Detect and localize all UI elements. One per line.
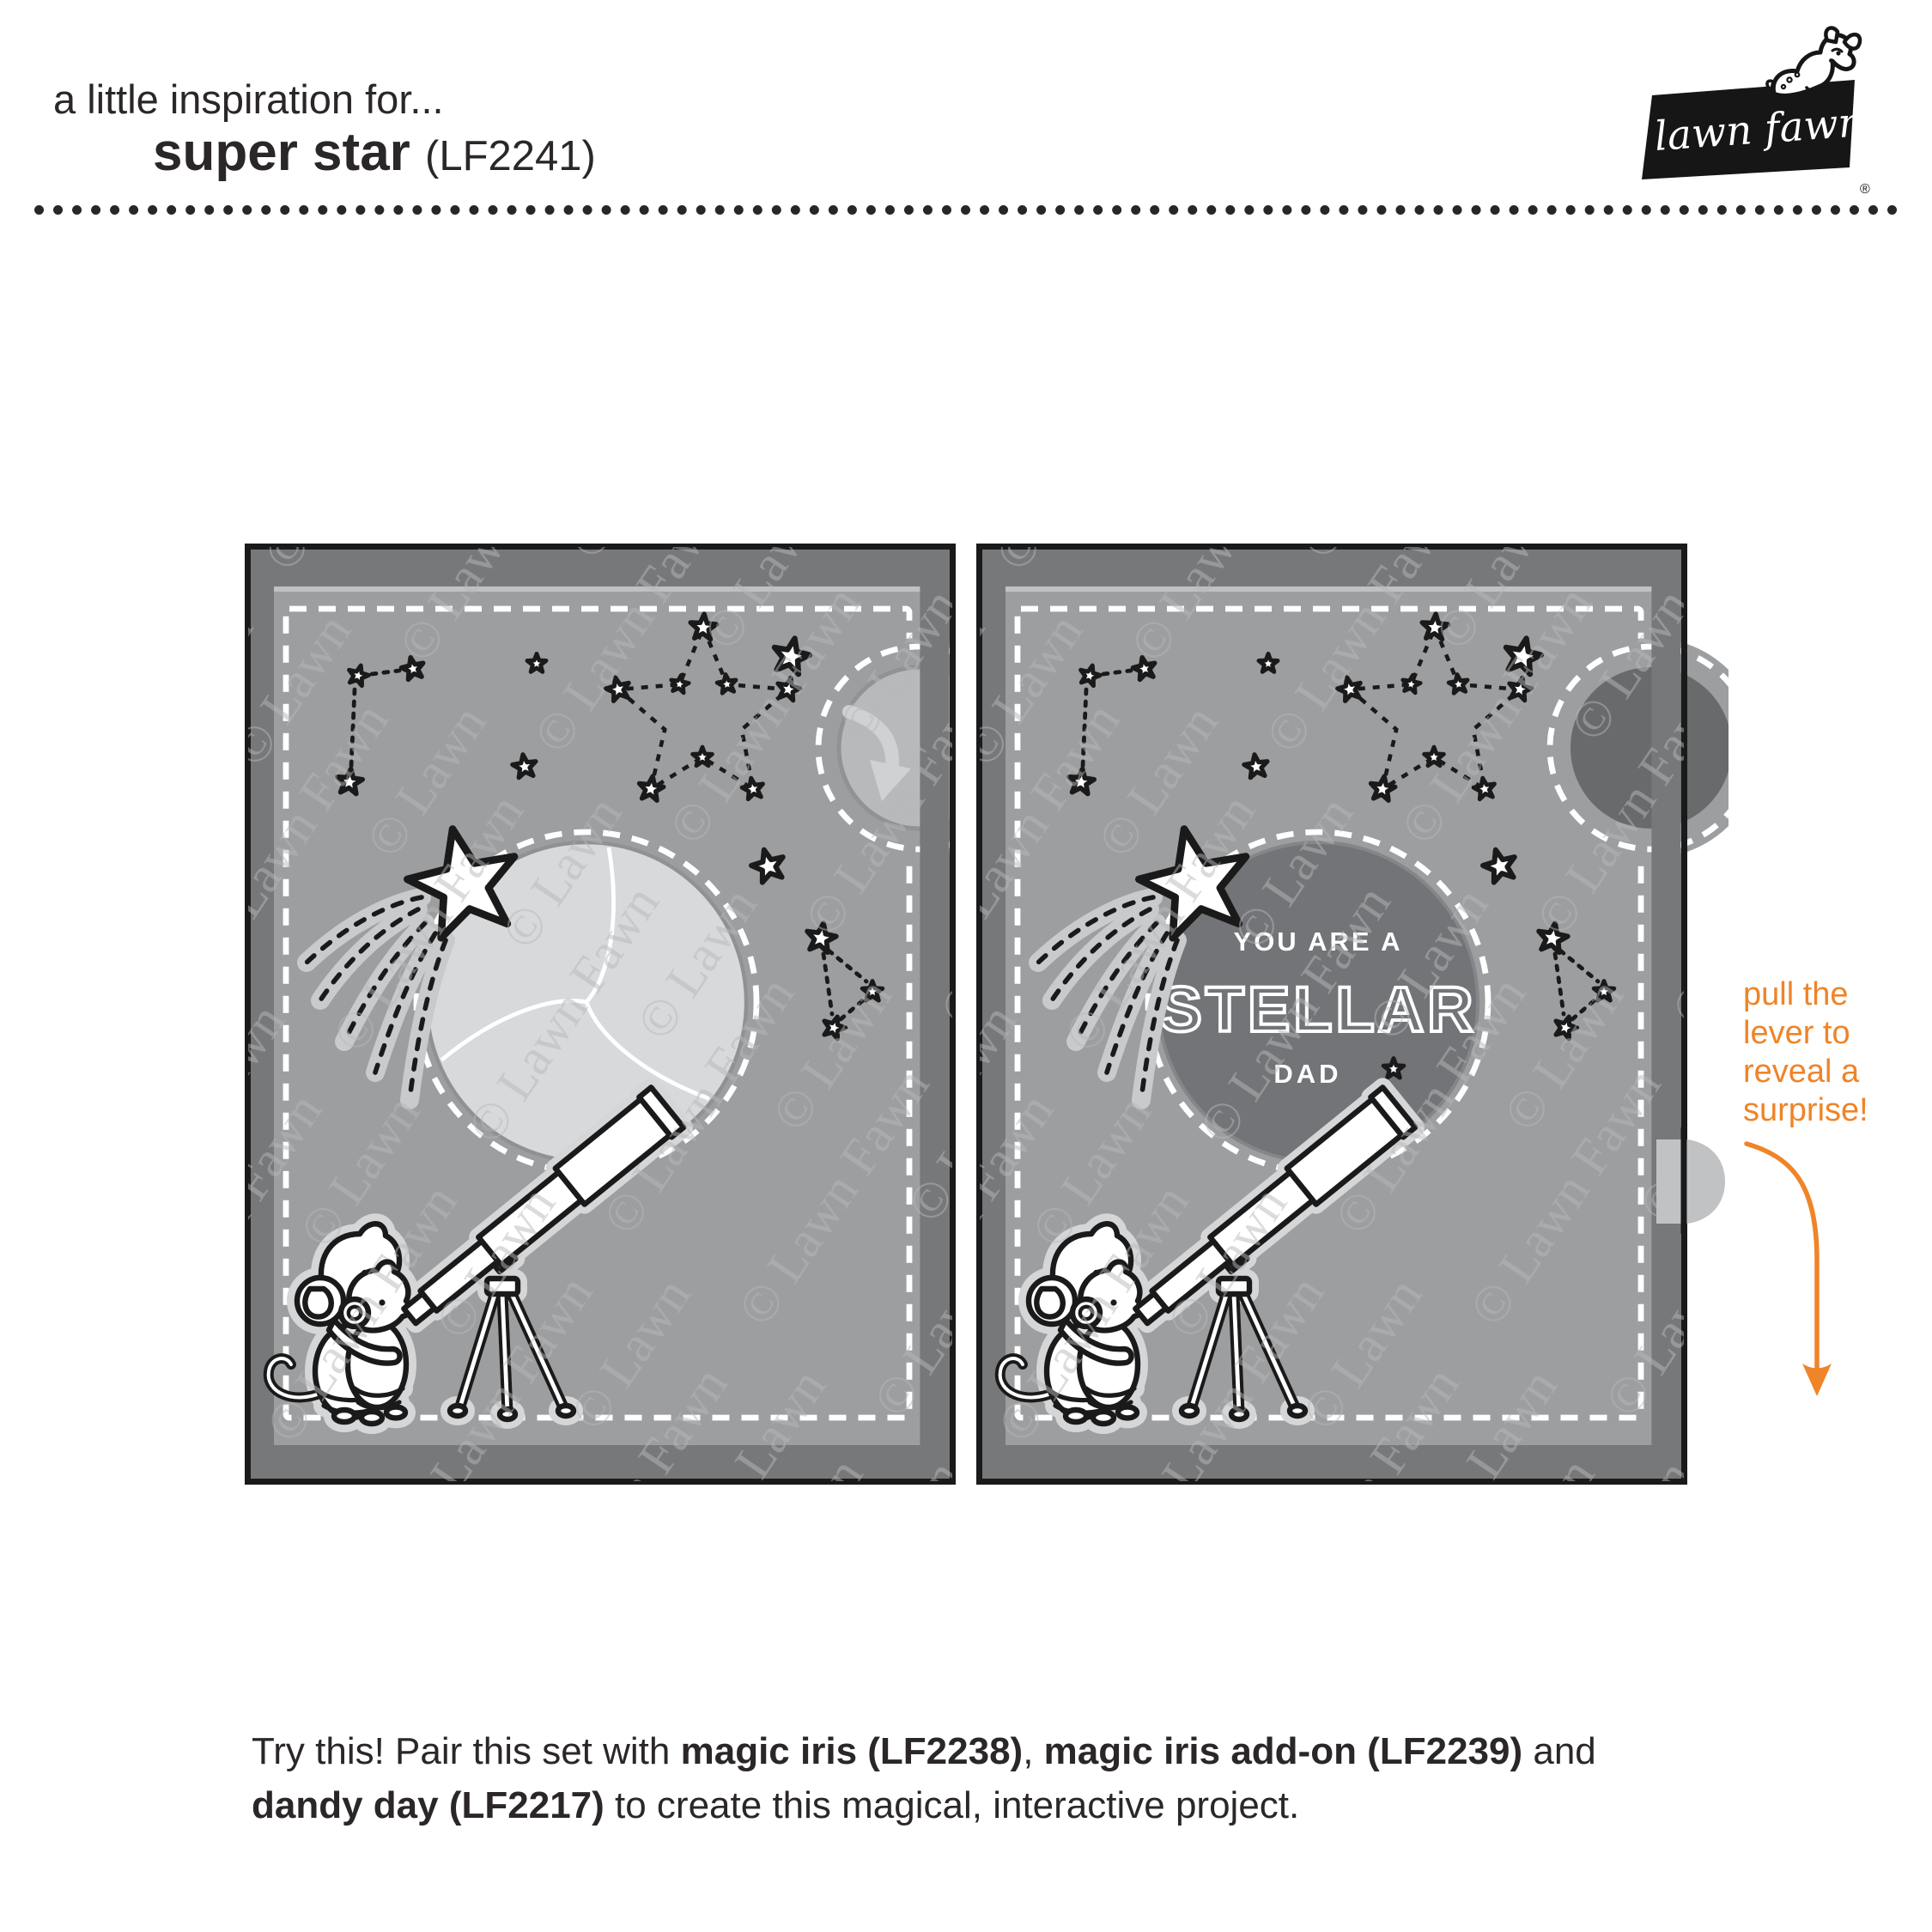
card-open: © Lawn Fawn © Lawn Fawn YOU ARE A STELLA…: [976, 544, 1728, 1485]
brand-logo: lawn fawn ®: [1631, 21, 1885, 206]
footer-product: magic iris (LF2238): [681, 1730, 1024, 1772]
footer-seg: ,: [1023, 1730, 1043, 1772]
watermark-overlay: [980, 547, 1684, 1481]
footer-seg: to create this magical, interactive proj…: [605, 1784, 1299, 1826]
page: { "header": { "tagline": "a little inspi…: [0, 0, 1932, 1932]
watermark-overlay: [248, 547, 952, 1481]
footer-seg: Try this! Pair this set with: [252, 1730, 681, 1772]
product-title: super star (LF2241): [153, 122, 596, 183]
product-name: super star: [153, 123, 410, 182]
header-tagline: a little inspiration for...: [53, 76, 444, 123]
footer-product: magic iris add-on (LF2239): [1044, 1730, 1522, 1772]
footer-product: dandy day (LF2217): [252, 1784, 605, 1826]
product-code: (LF2241): [425, 133, 596, 179]
annotation-arrow-icon: [1740, 1132, 1838, 1415]
lever-tab: [1656, 1139, 1725, 1224]
footer-note: Try this! Pair this set with magic iris …: [252, 1724, 1694, 1832]
footer-seg: and: [1522, 1730, 1596, 1772]
card-closed: © Lawn Fawn © Lawn Fawn: [245, 544, 956, 1485]
registered-mark: ®: [1860, 182, 1870, 197]
annotation-note: pull the lever to reveal a surprise!: [1743, 975, 1923, 1130]
dotted-divider: [34, 205, 1898, 215]
